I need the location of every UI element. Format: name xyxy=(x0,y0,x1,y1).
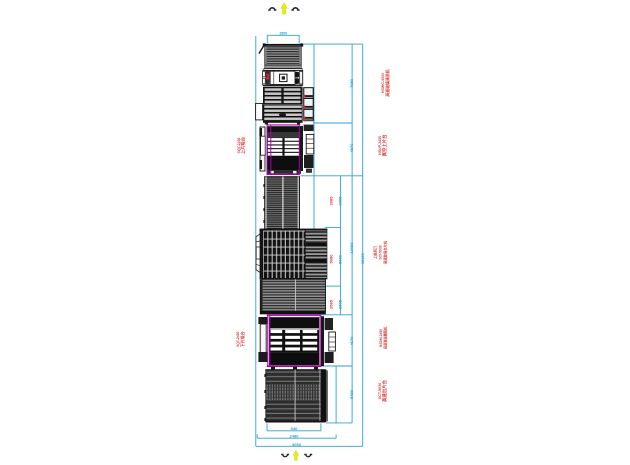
svg-text:高速玻璃清洗机: 高速玻璃清洗机 xyxy=(385,69,390,96)
svg-text:3085: 3085 xyxy=(329,196,334,206)
svg-text:7050: 7050 xyxy=(349,78,354,88)
svg-text:5080: 5080 xyxy=(337,254,342,264)
svg-text:2585: 2585 xyxy=(329,299,334,309)
svg-text:3085: 3085 xyxy=(337,196,342,206)
svg-text:2585: 2585 xyxy=(337,299,342,309)
svg-text:32150: 32150 xyxy=(360,252,365,264)
svg-text:940: 940 xyxy=(291,426,298,431)
svg-text:高速玻璃覆膜机: 高速玻璃覆膜机 xyxy=(383,326,388,349)
svg-text:1500: 1500 xyxy=(279,32,287,36)
svg-text:HSWC-3000: HSWC-3000 xyxy=(381,73,385,93)
svg-text:高速玻璃合片机: 高速玻璃合片机 xyxy=(382,240,387,264)
svg-text:3050: 3050 xyxy=(292,442,302,447)
svg-text:2480: 2480 xyxy=(290,433,300,438)
svg-text:5480: 5480 xyxy=(349,389,354,399)
svg-text:上部风刀: 上部风刀 xyxy=(373,245,378,259)
svg-text:XCT-5030: XCT-5030 xyxy=(378,383,382,400)
svg-text:4876: 4876 xyxy=(349,143,354,153)
svg-text:SQT-2430: SQT-2430 xyxy=(237,137,241,153)
svg-text:XQT-2450: XQT-2450 xyxy=(236,331,240,347)
svg-text:4670: 4670 xyxy=(349,336,354,346)
svg-text:HSUP-2430: HSUP-2430 xyxy=(378,136,382,155)
svg-text:5080: 5080 xyxy=(329,254,334,264)
svg-text:SCI-5030: SCI-5030 xyxy=(379,245,383,259)
svg-text:10080: 10080 xyxy=(349,242,354,254)
svg-text:HSDM-2450: HSDM-2450 xyxy=(379,329,383,347)
